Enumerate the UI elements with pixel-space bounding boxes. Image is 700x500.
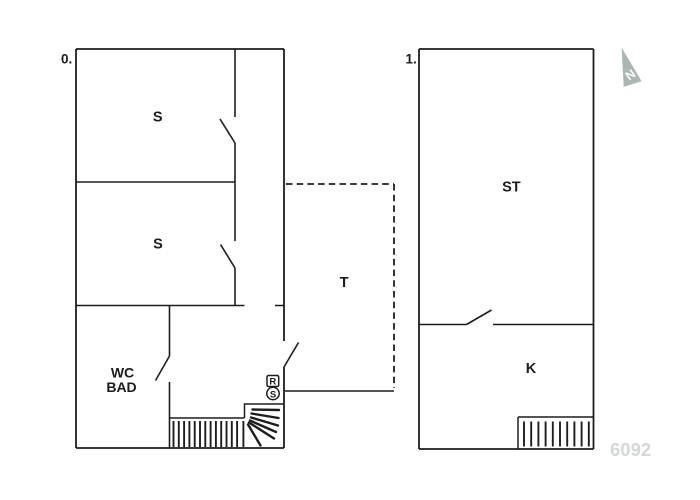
svg-text:K: K	[526, 361, 537, 377]
svg-text:6092: 6092	[610, 439, 651, 460]
svg-text:S: S	[153, 110, 163, 126]
svg-text:ST: ST	[502, 179, 521, 195]
svg-text:S: S	[153, 236, 163, 252]
svg-text:R: R	[269, 377, 276, 388]
svg-text:1.: 1.	[406, 52, 417, 67]
svg-text:S: S	[270, 389, 276, 400]
svg-text:BAD: BAD	[106, 379, 136, 395]
svg-text:0.: 0.	[61, 52, 72, 67]
svg-text:T: T	[340, 275, 349, 291]
